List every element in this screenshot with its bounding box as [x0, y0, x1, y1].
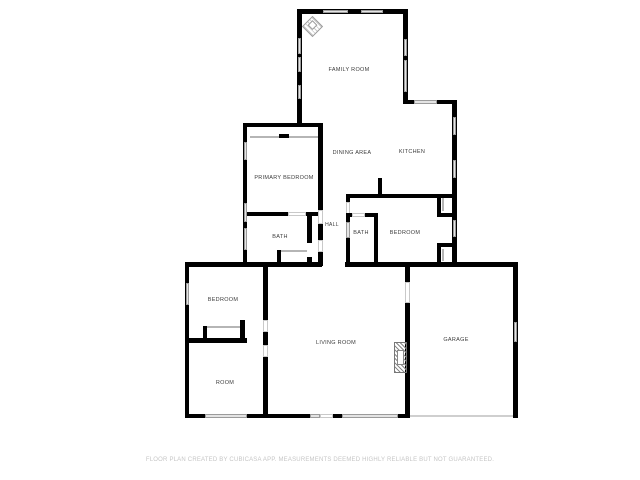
room-label-primary-bedroom: PRIMARY BEDROOM: [254, 175, 313, 181]
window: [186, 283, 189, 305]
room-label-living-room: LIVING ROOM: [316, 340, 356, 346]
closet-door-track: [207, 326, 240, 328]
window: [342, 414, 398, 418]
garage-door-line: [410, 415, 513, 417]
wall: [185, 262, 322, 267]
room-label-hall: HALL: [325, 222, 339, 228]
closet-door-track: [442, 198, 444, 211]
window: [298, 57, 301, 72]
room-label-bath-left: BATH: [272, 234, 287, 240]
window: [310, 414, 320, 418]
room-label-dining-area: DINING AREA: [333, 150, 372, 156]
window: [453, 220, 456, 237]
closet-stub: [437, 213, 457, 217]
door-opening: [318, 210, 323, 224]
room-label-kitchen: KITCHEN: [399, 149, 425, 155]
window: [453, 160, 456, 178]
door-opening: [352, 213, 365, 217]
wall: [243, 123, 323, 127]
closet-stub: [437, 196, 441, 213]
door-opening: [320, 414, 333, 418]
closet-stub: [240, 320, 245, 343]
room-label-room: ROOM: [216, 380, 234, 386]
compass-needle: [308, 20, 318, 30]
room-label-bath-right: BATH: [353, 230, 368, 236]
wall: [297, 9, 408, 14]
room-label-bedroom-middle: BEDROOM: [390, 230, 421, 236]
window: [404, 39, 407, 56]
window: [205, 414, 247, 418]
door-opening: [405, 282, 410, 303]
wall-bath-divider: [374, 217, 378, 266]
closet-door-track: [442, 249, 444, 261]
door-gray: [346, 222, 350, 238]
window: [404, 60, 407, 92]
wall-bedroom-bottom: [189, 338, 247, 343]
wall: [263, 262, 268, 418]
closet-stub: [437, 247, 441, 262]
wall: [345, 262, 518, 267]
window: [414, 100, 437, 104]
compass-icon: [302, 16, 323, 37]
door-opening: [263, 345, 268, 357]
room-label-bedroom-lower: BEDROOM: [208, 297, 239, 303]
window: [298, 85, 301, 99]
door-opening: [318, 240, 323, 252]
window: [361, 10, 383, 13]
window: [453, 117, 456, 135]
window: [298, 38, 301, 54]
disclaimer-text: FLOOR PLAN CREATED BY CUBICASA APP. MEAS…: [0, 457, 640, 463]
wall-bath-interior: [307, 216, 312, 243]
window: [514, 322, 517, 342]
window: [244, 203, 247, 222]
fireplace-icon: [394, 342, 407, 373]
closet-door-track: [281, 250, 307, 252]
window: [244, 228, 247, 250]
floor-plan-canvas: FAMILY ROOM DINING AREA KITCHEN PRIMARY …: [0, 0, 640, 480]
fireplace-hearth: [397, 350, 404, 365]
room-label-family-room: FAMILY ROOM: [329, 67, 370, 73]
window: [244, 142, 247, 160]
door-opening: [288, 212, 306, 216]
window: [323, 10, 348, 13]
closet-door-stop: [279, 134, 289, 138]
door-opening: [263, 320, 268, 332]
room-label-garage: GARAGE: [443, 337, 468, 343]
